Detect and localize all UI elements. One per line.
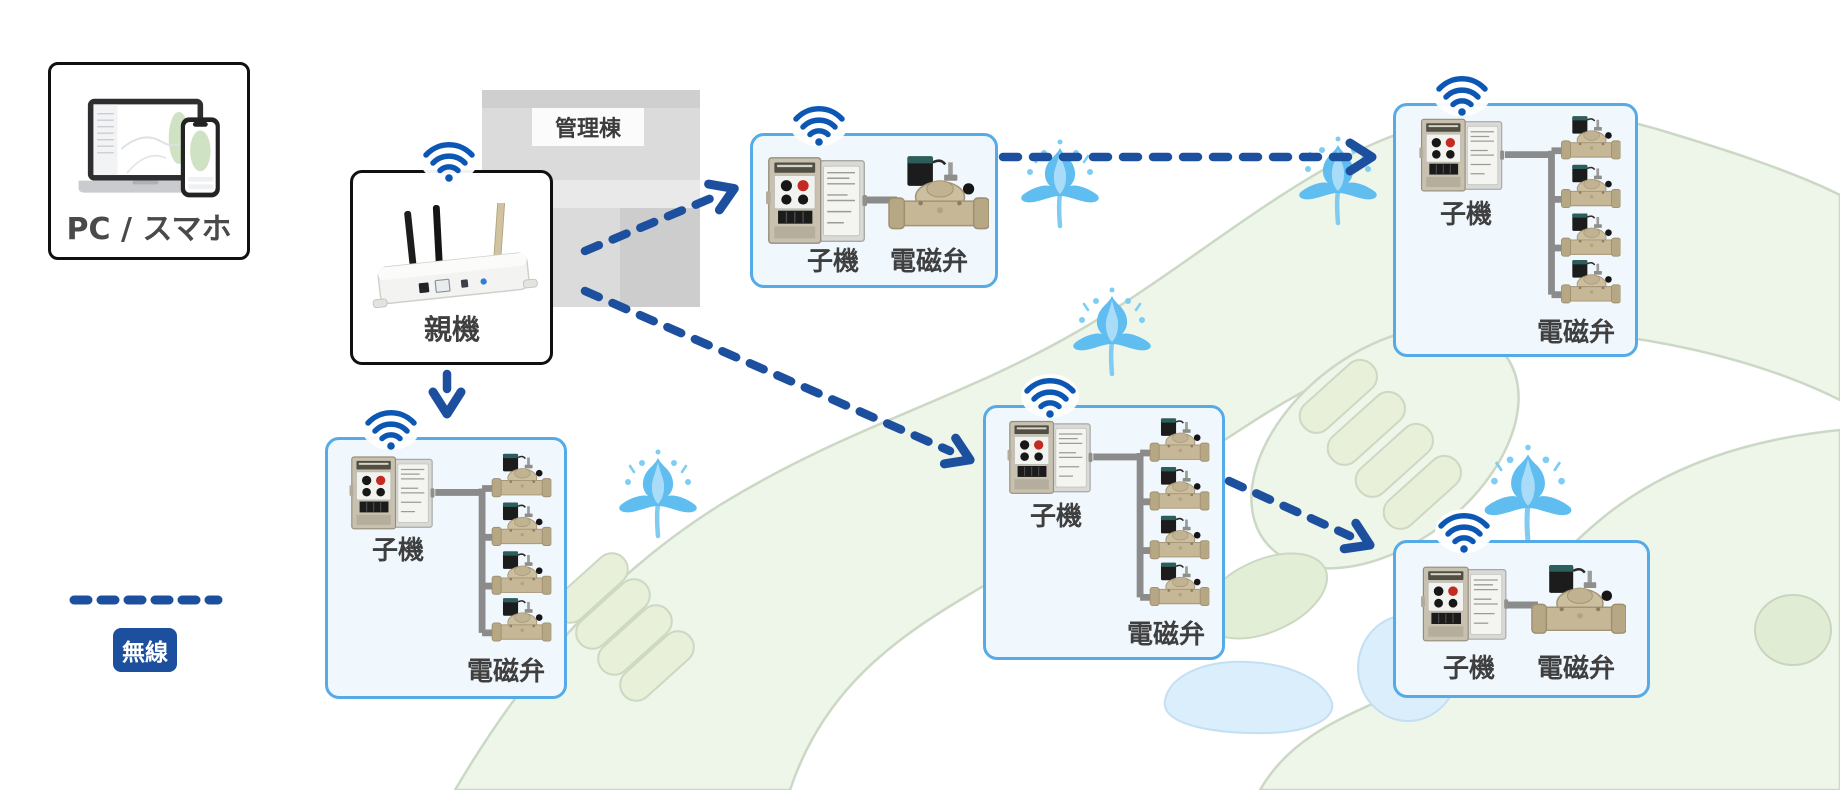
wireless-links bbox=[0, 0, 1840, 790]
wifi-signal-icon bbox=[361, 404, 421, 450]
wifi-signal-icon bbox=[419, 136, 479, 182]
link-base-to-top-middle bbox=[585, 197, 714, 251]
wifi-signal-icon bbox=[1432, 70, 1492, 116]
wifi-signal-icon bbox=[1434, 507, 1494, 553]
wifi-signal-icon bbox=[1020, 372, 1080, 418]
irrigation-system-diagram: 管理棟 PC / スマホ 親機 子機 電磁弁 子機 bbox=[0, 0, 1840, 790]
link-middle-to-bottom-right bbox=[1229, 481, 1350, 536]
wifi-signal-icon bbox=[789, 100, 849, 146]
link-base-to-middle bbox=[585, 291, 950, 451]
